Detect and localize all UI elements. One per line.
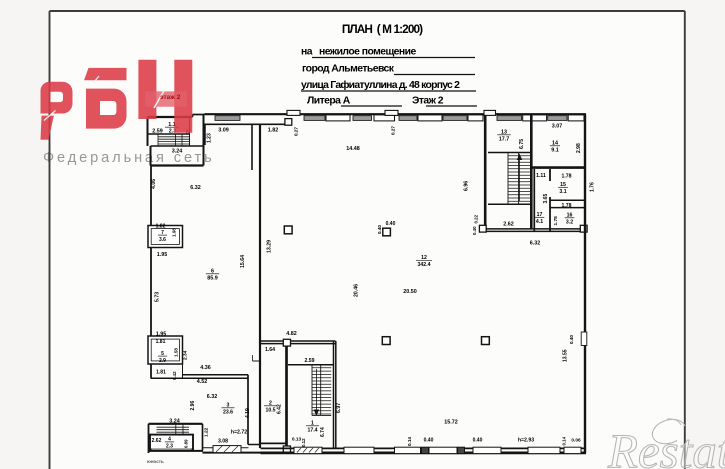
svg-text:0.12: 0.12: [301, 438, 306, 447]
svg-text:17.4: 17.4: [307, 428, 317, 434]
svg-text:4.36: 4.36: [200, 365, 211, 371]
svg-text:0.14: 0.14: [562, 436, 567, 445]
svg-text:2.9: 2.9: [159, 358, 166, 364]
svg-text:342.4: 342.4: [418, 262, 431, 268]
svg-text:3.24: 3.24: [169, 419, 180, 425]
svg-text:h=2.93: h=2.93: [518, 438, 534, 444]
svg-text:Литера А: Литера А: [307, 96, 351, 107]
svg-text:1.23: 1.23: [207, 133, 213, 143]
svg-text:9.1: 9.1: [551, 148, 559, 154]
svg-text:1.11: 1.11: [536, 173, 546, 179]
svg-text:0.27: 0.27: [294, 127, 299, 136]
svg-text:0.42: 0.42: [172, 371, 177, 380]
svg-text:0.40: 0.40: [386, 221, 396, 227]
svg-text:17.7: 17.7: [499, 137, 510, 143]
svg-text:20.46: 20.46: [354, 284, 360, 297]
svg-text:3.65: 3.65: [543, 194, 549, 204]
svg-text:1.81: 1.81: [156, 370, 166, 376]
svg-text:4.19: 4.19: [245, 408, 251, 418]
svg-text:1.64: 1.64: [265, 347, 275, 353]
svg-text:1.78: 1.78: [553, 216, 559, 226]
svg-text:3.1: 3.1: [559, 189, 566, 195]
svg-text:6.32: 6.32: [207, 394, 218, 400]
svg-text:20.50: 20.50: [403, 289, 417, 295]
svg-text:6.75: 6.75: [519, 139, 525, 149]
svg-text:0.27: 0.27: [391, 126, 396, 135]
svg-text:1.76: 1.76: [590, 182, 596, 192]
svg-text:3.2: 3.2: [566, 220, 573, 226]
svg-text:2.98: 2.98: [576, 143, 582, 153]
svg-text:3.6: 3.6: [159, 237, 166, 243]
svg-text:на нежилое помещение: на нежилое помещение: [301, 47, 416, 58]
svg-text:3.09: 3.09: [218, 128, 229, 134]
svg-text:0.22: 0.22: [474, 214, 479, 223]
svg-text:ПЛАН ( М 1:200): ПЛАН ( М 1:200): [342, 22, 423, 36]
svg-text:город Альметьевск: город Альметьевск: [302, 64, 395, 75]
svg-text:0.40: 0.40: [569, 335, 574, 344]
svg-text:0.14: 0.14: [407, 437, 412, 446]
svg-text:0.89: 0.89: [184, 439, 189, 448]
svg-text:6.32: 6.32: [530, 241, 541, 247]
svg-text:Федеральная сеть: Федеральная сеть: [43, 150, 215, 166]
svg-text:6.42: 6.42: [277, 404, 283, 414]
svg-text:0.40: 0.40: [473, 438, 483, 444]
svg-text:15.72: 15.72: [444, 420, 458, 426]
svg-text:2.3: 2.3: [169, 128, 177, 134]
svg-text:1.95: 1.95: [156, 331, 167, 337]
svg-text:улица Гафиатуллина д. 48 корпу: улица Гафиатуллина д. 48 корпус 2: [301, 79, 460, 91]
svg-text:1.22: 1.22: [204, 427, 210, 437]
svg-text:2.59: 2.59: [304, 358, 314, 364]
svg-text:0.40: 0.40: [377, 225, 382, 234]
svg-text:1.82: 1.82: [268, 128, 279, 134]
svg-text:2.62: 2.62: [503, 221, 514, 227]
svg-text:4.1: 4.1: [536, 219, 543, 225]
svg-text:4.82: 4.82: [286, 331, 297, 337]
svg-text:85.9: 85.9: [207, 276, 218, 282]
svg-text:13.29: 13.29: [267, 240, 273, 253]
svg-text:4.06: 4.06: [151, 179, 157, 189]
svg-text:2.96: 2.96: [190, 401, 196, 411]
svg-text:0.40: 0.40: [424, 438, 434, 444]
svg-text:3.24: 3.24: [172, 149, 183, 155]
svg-text:10.5: 10.5: [265, 408, 275, 414]
svg-text:1.81: 1.81: [156, 339, 166, 345]
svg-text:co: co: [185, 129, 190, 134]
svg-text:1.98: 1.98: [172, 228, 177, 237]
svg-text:6.97: 6.97: [336, 403, 342, 413]
svg-text:0.06: 0.06: [571, 438, 581, 444]
svg-text:1.58: 1.58: [174, 348, 179, 357]
svg-text:1.82: 1.82: [156, 223, 166, 229]
svg-text:Этаж 2: Этаж 2: [412, 96, 444, 107]
svg-text:6.74: 6.74: [320, 427, 326, 437]
svg-text:6.32: 6.32: [190, 185, 201, 191]
svg-text:6.96: 6.96: [464, 181, 470, 191]
svg-text:2.3: 2.3: [166, 444, 173, 450]
svg-text:1.78: 1.78: [561, 173, 571, 179]
svg-text:0.40: 0.40: [472, 226, 477, 235]
svg-text:2.59: 2.59: [152, 128, 163, 134]
svg-text:4.52: 4.52: [197, 379, 208, 385]
svg-text:1.95: 1.95: [157, 252, 168, 258]
svg-text:1.78: 1.78: [561, 203, 571, 209]
svg-text:15.64: 15.64: [240, 255, 246, 268]
svg-text:3.07: 3.07: [552, 123, 563, 129]
svg-text:2.34: 2.34: [183, 350, 189, 360]
svg-text:2.62: 2.62: [152, 438, 162, 444]
svg-text:3.08: 3.08: [218, 439, 228, 445]
svg-text:5.73: 5.73: [155, 292, 161, 302]
svg-text:h=2.72: h=2.72: [231, 430, 247, 436]
svg-text:14.48: 14.48: [346, 146, 360, 152]
svg-text:юность: юность: [147, 459, 164, 464]
svg-text:13.55: 13.55: [563, 349, 569, 362]
svg-text:23.6: 23.6: [223, 410, 233, 416]
